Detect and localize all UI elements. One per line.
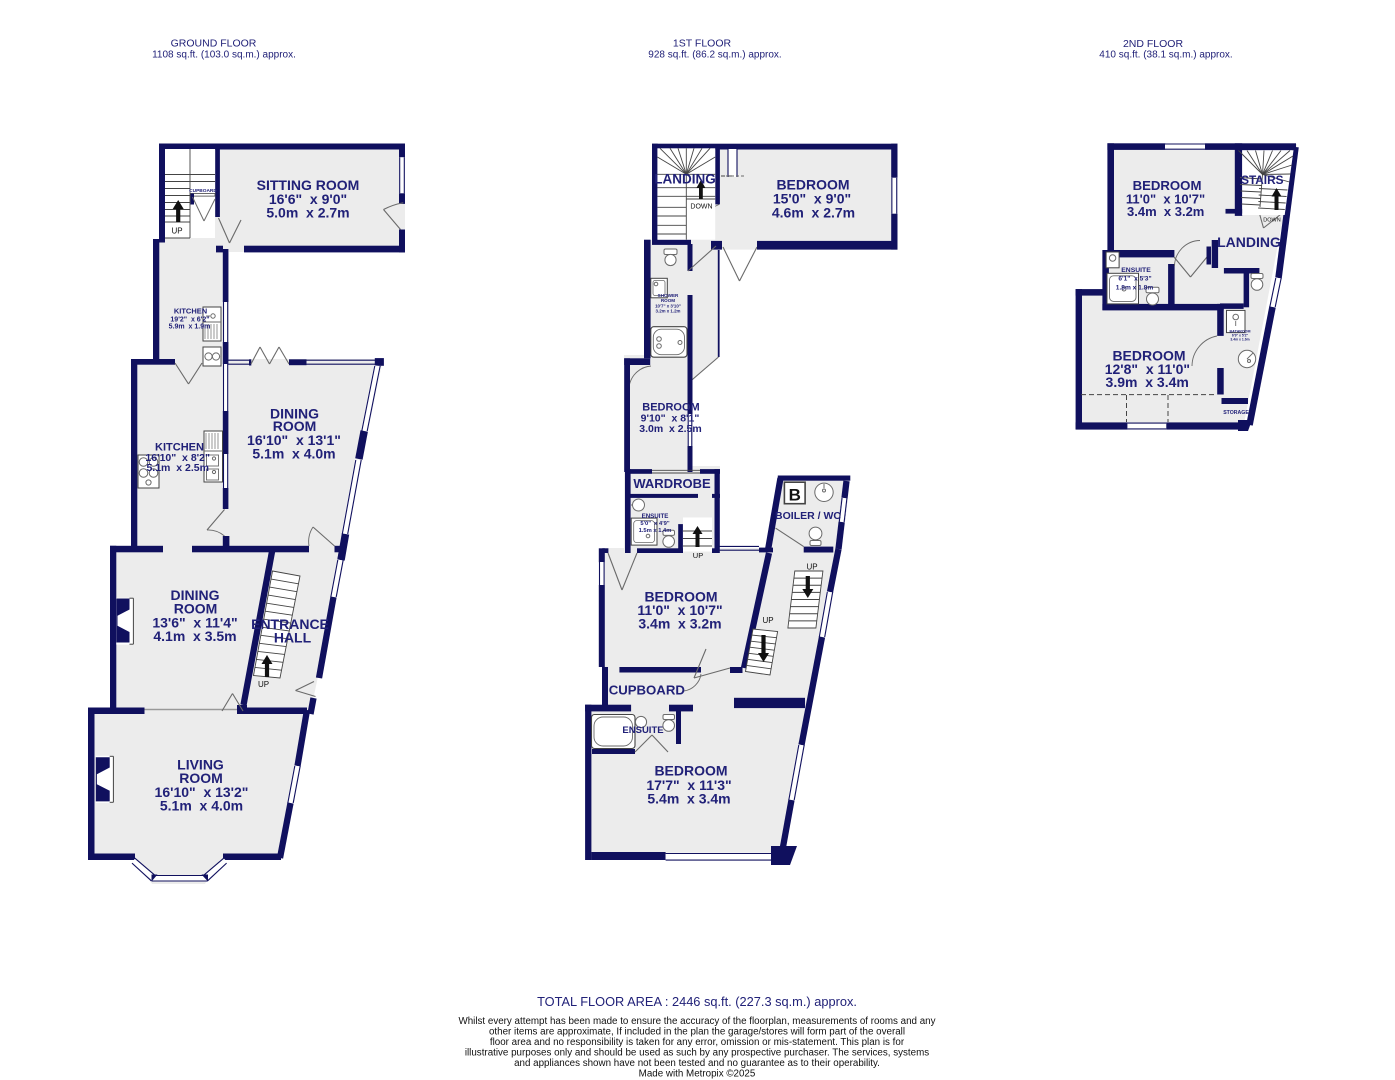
svg-text:floor area and no responsibili: floor area and no responsibility is take…: [490, 1037, 905, 1048]
svg-text:ROOM: ROOM: [661, 298, 675, 303]
svg-text:DOWN: DOWN: [690, 204, 712, 211]
svg-text:other items are approximate, I: other items are approximate, If included…: [489, 1027, 905, 1038]
svg-text:KITCHEN: KITCHEN: [174, 307, 207, 316]
svg-text:UP: UP: [258, 680, 269, 689]
svg-text:5.9m x 1.9m: 5.9m x 1.9m: [169, 324, 211, 331]
svg-text:5.0m x 2.7m: 5.0m x 2.7m: [266, 204, 349, 220]
svg-text:DOWN: DOWN: [1263, 218, 1280, 224]
svg-text:410 sq.ft. (38.1 sq.m.) approx: 410 sq.ft. (38.1 sq.m.) approx.: [1099, 50, 1232, 61]
svg-text:CUPBOARD: CUPBOARD: [609, 683, 685, 698]
svg-text:1.8m x 1.8m: 1.8m x 1.8m: [1116, 285, 1154, 292]
svg-text:5'0" x 4'9": 5'0" x 4'9": [640, 521, 669, 527]
svg-text:illustrative purposes only and: illustrative purposes only and should be…: [465, 1048, 929, 1059]
svg-text:Made with Metropix ©2025: Made with Metropix ©2025: [639, 1069, 756, 1080]
svg-text:WARDROBE: WARDROBE: [633, 476, 711, 491]
svg-text:2ND FLOOR: 2ND FLOOR: [1123, 38, 1184, 50]
svg-text:3.0m x 2.5m: 3.0m x 2.5m: [639, 423, 701, 435]
svg-text:5.1m x 4.0m: 5.1m x 4.0m: [252, 446, 335, 462]
svg-text:5.4m x 3.4m: 5.4m x 3.4m: [647, 791, 730, 807]
svg-text:GROUND FLOOR: GROUND FLOOR: [171, 38, 257, 50]
svg-text:928 sq.ft. (86.2 sq.m.) approx: 928 sq.ft. (86.2 sq.m.) approx.: [648, 50, 781, 61]
svg-text:3.9m x 3.4m: 3.9m x 3.4m: [1106, 374, 1189, 390]
svg-text:ENSUITE: ENSUITE: [622, 725, 663, 736]
svg-text:LANDING: LANDING: [654, 172, 716, 187]
svg-text:ENSUITE: ENSUITE: [1121, 267, 1151, 274]
svg-text:BOILER / WC: BOILER / WC: [775, 510, 841, 522]
svg-text:and appliances shown have not: and appliances shown have not been teste…: [514, 1058, 880, 1069]
svg-text:1ST FLOOR: 1ST FLOOR: [673, 38, 732, 50]
svg-text:5.1m x 4.0m: 5.1m x 4.0m: [160, 797, 243, 813]
svg-text:3.4m x 3.2m: 3.4m x 3.2m: [1127, 204, 1204, 219]
svg-text:4.6m x 2.7m: 4.6m x 2.7m: [772, 205, 855, 221]
svg-text:1.5m x 1.4m: 1.5m x 1.4m: [639, 528, 672, 534]
svg-text:19'2" x 6'2": 19'2" x 6'2": [170, 316, 209, 323]
svg-text:1108 sq.ft. (103.0 sq.m.) appr: 1108 sq.ft. (103.0 sq.m.) approx.: [152, 50, 296, 61]
svg-text:STAIRS: STAIRS: [1241, 173, 1284, 187]
svg-text:3.4m x 3.2m: 3.4m x 3.2m: [638, 615, 721, 631]
svg-text:5.1m x 2.5m: 5.1m x 2.5m: [146, 462, 208, 474]
svg-text:3.4m x 1.6m: 3.4m x 1.6m: [1230, 338, 1249, 342]
svg-text:3.2m x 1.2m: 3.2m x 1.2m: [656, 309, 681, 314]
svg-text:TOTAL FLOOR AREA : 2446 sq.ft.: TOTAL FLOOR AREA : 2446 sq.ft. (227.3 sq…: [537, 994, 857, 1009]
svg-text:UP: UP: [806, 563, 817, 572]
svg-text:B: B: [789, 486, 801, 505]
svg-text:HALL: HALL: [274, 630, 312, 646]
svg-text:Whilst every attempt has been: Whilst every attempt has been made to en…: [458, 1016, 935, 1027]
svg-text:4.1m x 3.5m: 4.1m x 3.5m: [153, 628, 236, 644]
svg-text:LANDING: LANDING: [1217, 234, 1281, 250]
svg-text:UP: UP: [693, 551, 703, 560]
svg-text:STORAGE: STORAGE: [1223, 410, 1249, 416]
svg-text:UP: UP: [171, 227, 182, 236]
svg-text:ENSUITE: ENSUITE: [642, 513, 669, 520]
svg-text:6'1" x 5'3": 6'1" x 5'3": [1118, 276, 1151, 283]
svg-text:UP: UP: [762, 616, 773, 625]
